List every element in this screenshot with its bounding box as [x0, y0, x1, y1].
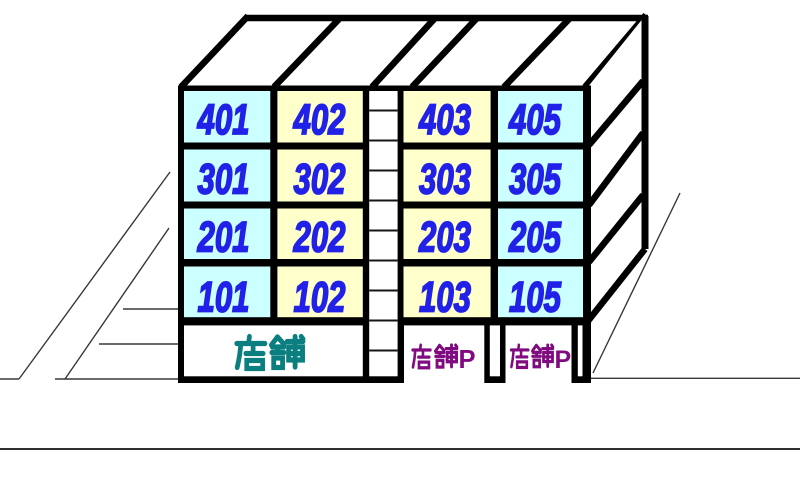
svg-text:401: 401	[197, 96, 250, 144]
svg-text:205: 205	[508, 214, 562, 262]
svg-text:102: 102	[294, 274, 346, 322]
svg-text:105: 105	[509, 274, 562, 322]
svg-text:P: P	[555, 346, 572, 374]
svg-text:402: 402	[293, 96, 346, 144]
svg-text:303: 303	[419, 156, 471, 204]
svg-text:201: 201	[197, 214, 250, 262]
svg-text:301: 301	[198, 156, 250, 204]
svg-text:101: 101	[198, 274, 250, 322]
svg-text:203: 203	[418, 214, 471, 262]
svg-text:202: 202	[293, 214, 346, 262]
svg-text:302: 302	[294, 156, 346, 204]
svg-text:P: P	[459, 346, 476, 374]
svg-text:103: 103	[419, 274, 471, 322]
svg-text:305: 305	[509, 156, 562, 204]
svg-text:405: 405	[508, 96, 562, 144]
svg-text:403: 403	[418, 96, 471, 144]
